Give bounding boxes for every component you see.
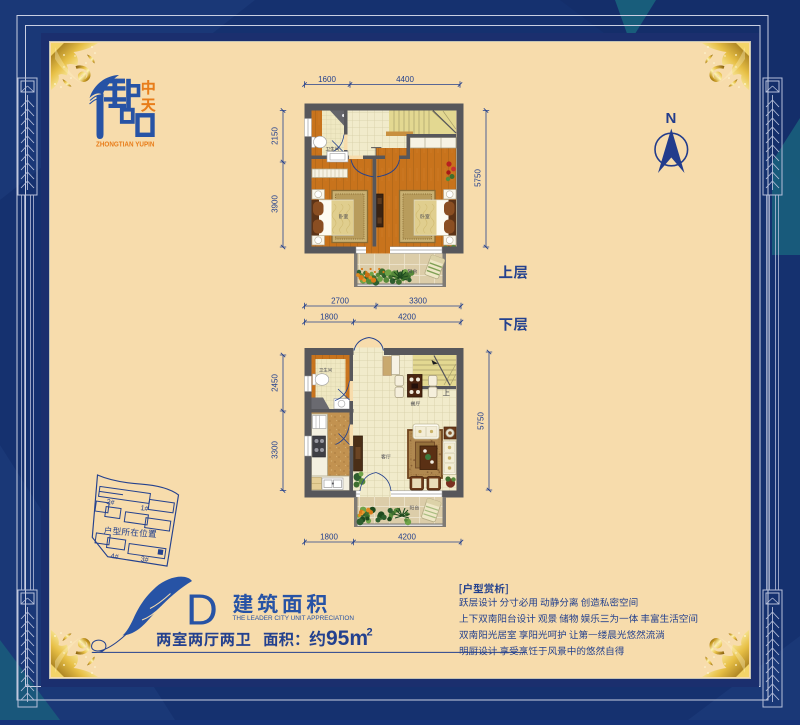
svg-text:D: D (186, 586, 218, 635)
svg-text:THE LEADER CITY UNIT APPRECIAT: THE LEADER CITY UNIT APPRECIATION (233, 615, 355, 622)
svg-text:2700: 2700 (331, 297, 349, 306)
svg-text:2: 2 (367, 627, 373, 639)
svg-text:4#: 4# (110, 551, 119, 561)
svg-text:1800: 1800 (320, 533, 338, 542)
svg-text:2#: 2# (106, 497, 115, 507)
svg-text:3#: 3# (140, 554, 149, 564)
svg-text:2450: 2450 (271, 374, 280, 392)
svg-text:3900: 3900 (271, 195, 280, 213)
svg-text:5750: 5750 (477, 412, 486, 430)
svg-text:1#: 1# (140, 503, 149, 513)
svg-text:1600: 1600 (318, 75, 336, 84)
svg-text:3300: 3300 (271, 441, 280, 459)
svg-text:95m: 95m (326, 627, 368, 650)
svg-text:5750: 5750 (474, 169, 483, 187)
svg-text:4400: 4400 (396, 75, 414, 84)
svg-text:1800: 1800 (320, 313, 338, 322)
svg-text:N: N (666, 110, 677, 127)
svg-text:2150: 2150 (271, 127, 280, 145)
svg-text:4200: 4200 (398, 313, 416, 322)
svg-text:3300: 3300 (409, 297, 427, 306)
svg-text:4200: 4200 (398, 533, 416, 542)
svg-text:ZHONGTIAN YUPIN: ZHONGTIAN YUPIN (96, 140, 155, 149)
